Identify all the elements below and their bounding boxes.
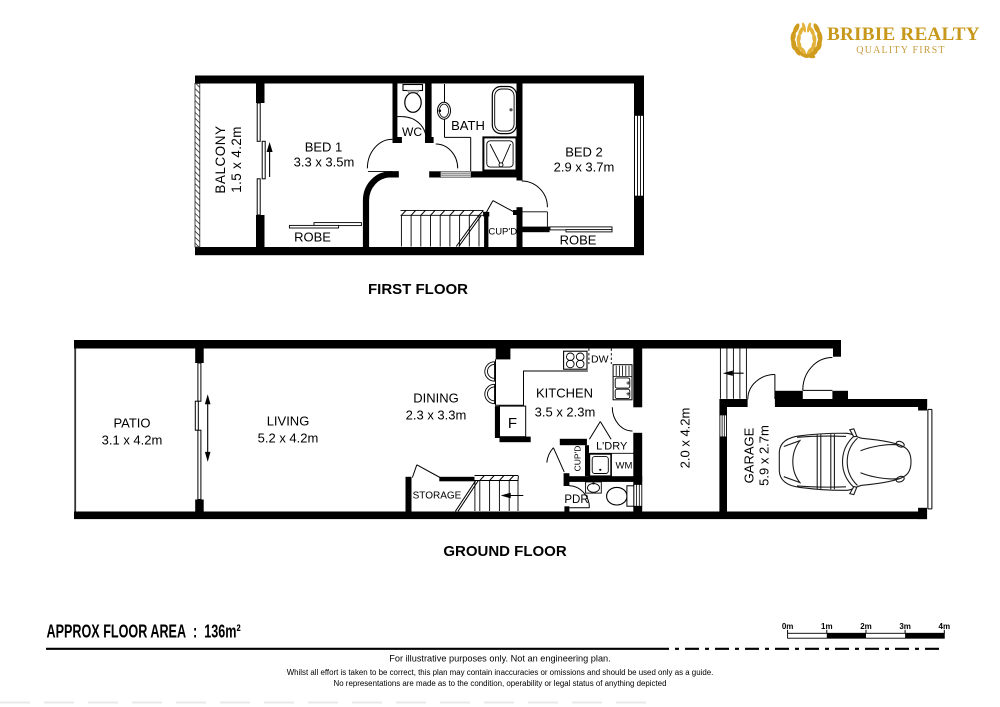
svg-text:BATH: BATH [451, 118, 485, 133]
svg-text:WM: WM [616, 460, 633, 471]
svg-text:BRIBIE REALTY: BRIBIE REALTY [827, 24, 980, 45]
svg-text:FIRST FLOOR: FIRST FLOOR [368, 281, 468, 298]
svg-text:1m: 1m [821, 622, 833, 631]
svg-text:2.3 x 3.3m: 2.3 x 3.3m [406, 408, 467, 423]
svg-text:F: F [508, 415, 517, 432]
svg-text:ROBE: ROBE [294, 230, 331, 245]
svg-text:PDR: PDR [564, 494, 588, 506]
svg-text:4m: 4m [939, 622, 951, 631]
svg-text:APPROX FLOOR AREA : 136m²: APPROX FLOOR AREA : 136m² [47, 622, 241, 642]
svg-text:0m: 0m [782, 622, 794, 631]
svg-text:GARAGE: GARAGE [742, 427, 757, 483]
svg-text:CUP'D: CUP'D [488, 227, 517, 238]
svg-text:DINING: DINING [413, 391, 459, 406]
svg-text:5.9 x 2.7m: 5.9 x 2.7m [757, 425, 772, 486]
svg-text:No representations are made as: No representations are made as to the co… [334, 679, 667, 688]
svg-text:QUALITY FIRST: QUALITY FIRST [856, 45, 945, 56]
svg-text:3.1 x 4.2m: 3.1 x 4.2m [102, 433, 163, 448]
svg-text:KITCHEN: KITCHEN [536, 386, 593, 401]
svg-text:WC: WC [402, 125, 422, 139]
svg-text:STORAGE: STORAGE [413, 490, 462, 501]
svg-text:2.9 x 3.7m: 2.9 x 3.7m [554, 160, 615, 175]
svg-text:PATIO: PATIO [113, 416, 150, 431]
svg-text:BED 1: BED 1 [305, 140, 343, 155]
svg-text:Whilst all effort is taken to: Whilst all effort is taken to be correct… [287, 668, 714, 677]
svg-text:ROBE: ROBE [560, 233, 597, 248]
svg-text:BED 2: BED 2 [565, 145, 603, 160]
svg-text:3.3 x 3.5m: 3.3 x 3.5m [294, 155, 355, 170]
svg-text:BALCONY: BALCONY [213, 125, 228, 193]
svg-text:5.2 x 4.2m: 5.2 x 4.2m [258, 431, 319, 446]
svg-text:GROUND FLOOR: GROUND FLOOR [443, 543, 566, 560]
svg-text:For illustrative purposes only: For illustrative purposes only. Not an e… [389, 654, 610, 664]
svg-text:L'DRY: L'DRY [596, 441, 628, 453]
svg-text:3.5 x 2.3m: 3.5 x 2.3m [535, 405, 596, 420]
svg-text:2m: 2m [860, 622, 872, 631]
svg-text:3m: 3m [899, 622, 911, 631]
svg-text:2.0 x 4.2m: 2.0 x 4.2m [678, 408, 693, 469]
svg-text:CUP'D: CUP'D [573, 446, 583, 472]
svg-text:DW: DW [591, 354, 609, 366]
svg-text:1.5 x 4.2m: 1.5 x 4.2m [229, 126, 244, 193]
svg-text:LIVING: LIVING [267, 414, 310, 429]
